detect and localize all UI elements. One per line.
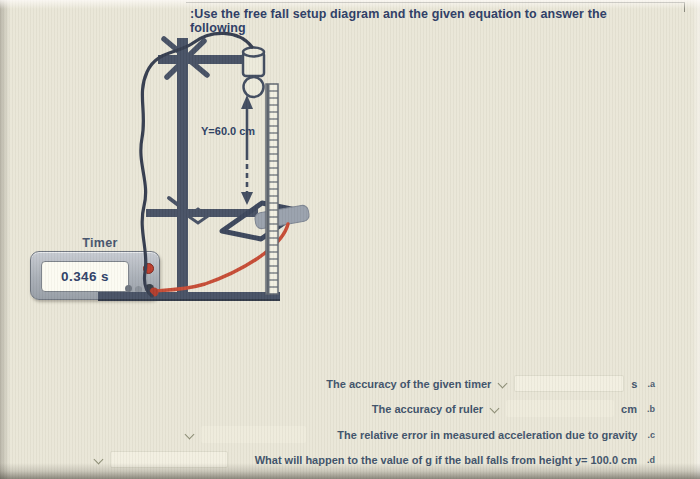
question-row-c: The relative error in measured accelerat… bbox=[0, 425, 655, 444]
answer-input[interactable] bbox=[514, 375, 624, 392]
ruler bbox=[266, 84, 278, 294]
timer-device: 0.346 s bbox=[30, 251, 160, 300]
question-label: What will happen to the value of g if th… bbox=[255, 454, 637, 466]
question-row-d: What will happen to the value of g if th… bbox=[0, 450, 655, 469]
timer-button bbox=[125, 285, 132, 292]
chevron-down-icon[interactable] bbox=[185, 430, 194, 439]
height-arrow bbox=[241, 95, 253, 205]
timer-button bbox=[135, 286, 142, 293]
question-letter: .a bbox=[647, 379, 655, 389]
question-letter: .c bbox=[647, 430, 655, 440]
question-label: The relative error in measured accelerat… bbox=[337, 429, 637, 441]
timer-display: 0.346 s bbox=[41, 261, 129, 292]
question-row-b: The accuracy of ruler cm.b bbox=[0, 399, 655, 418]
unit-label: s bbox=[631, 378, 637, 390]
chevron-down-icon[interactable] bbox=[94, 455, 103, 464]
lower-arm bbox=[146, 209, 258, 217]
chevron-down-icon[interactable] bbox=[498, 379, 507, 388]
question-letter: .d bbox=[647, 455, 655, 465]
top-arm bbox=[158, 55, 253, 64]
question-letter: .b bbox=[647, 404, 655, 414]
lower-clamp bbox=[188, 209, 208, 223]
stand-pole bbox=[177, 38, 188, 294]
answer-input[interactable] bbox=[110, 451, 228, 468]
answer-input[interactable] bbox=[201, 426, 306, 443]
falling-ball bbox=[244, 77, 264, 97]
chevron-down-icon[interactable] bbox=[490, 404, 499, 413]
top-clamp bbox=[164, 39, 207, 77]
receptor-platform bbox=[222, 203, 301, 239]
timer-wire-port bbox=[143, 263, 154, 274]
answer-input[interactable] bbox=[506, 400, 614, 417]
fall-height-label: Y=60.0 cm bbox=[201, 125, 255, 137]
electromagnet bbox=[243, 48, 264, 77]
page-title: :Use the free fall setup diagram and the… bbox=[190, 7, 660, 35]
timer-label: Timer bbox=[60, 236, 140, 250]
question-label: The accuracy of the given timer bbox=[326, 378, 491, 390]
red-signal-wire bbox=[152, 224, 288, 291]
timer-button bbox=[145, 284, 154, 293]
unit-label: cm bbox=[621, 403, 637, 415]
question-row-a: The accuracy of the given timer s.a bbox=[0, 374, 655, 393]
question-label: The accuracy of ruler bbox=[372, 403, 483, 415]
receptor-pad bbox=[254, 204, 310, 229]
